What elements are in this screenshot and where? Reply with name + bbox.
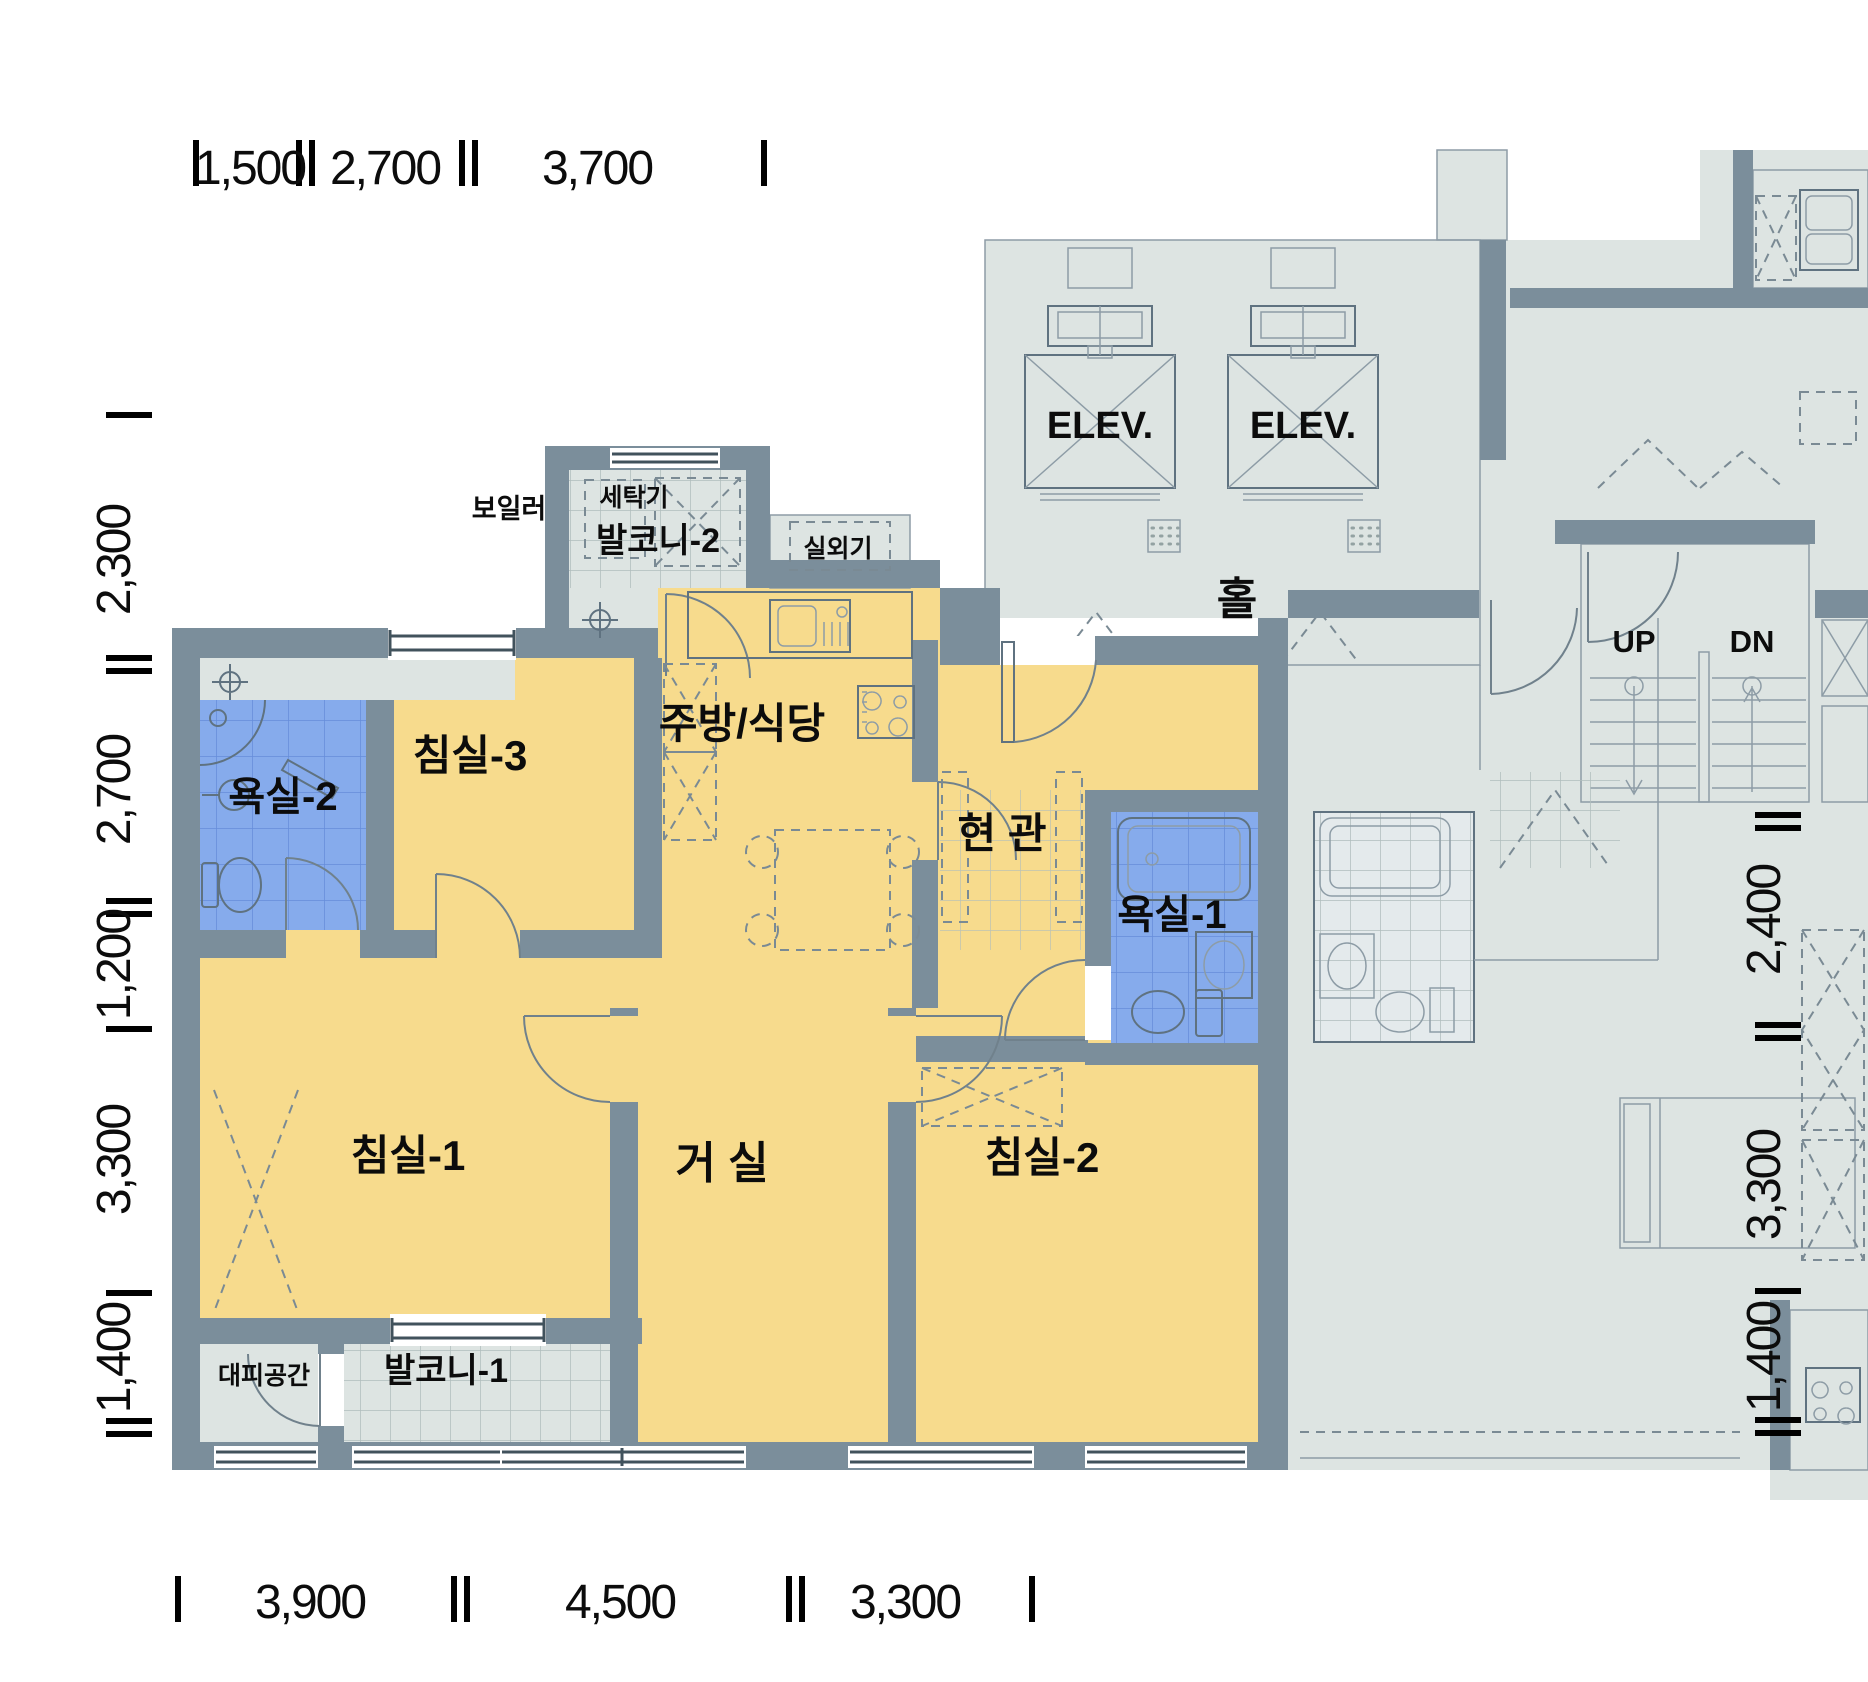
dim-tick [106, 1290, 152, 1296]
dim-tick [451, 1576, 457, 1622]
wall-bath2-bed3 [366, 700, 394, 958]
wall-right-exterior [1258, 618, 1288, 1470]
dim-tick [106, 412, 152, 418]
dim-tick [1755, 1430, 1801, 1436]
dim-left-2: 2,700 [88, 735, 141, 845]
label-elevator1: ELEV. [1047, 405, 1153, 447]
dim-tick [106, 1026, 152, 1032]
window-bed1-balcony [390, 1314, 546, 1346]
dim-top-1: 1,500 [195, 142, 305, 195]
dim-tick [106, 1431, 152, 1437]
floor-plan-page: 욕실-2 침실-3 주방/식당 현 관 욕실-1 침실-1 거 실 침실-2 발… [0, 0, 1868, 1682]
window-balcony1 [352, 1446, 508, 1468]
wall-kitchen-entrance-lower [912, 860, 938, 1008]
label-washer: 세탁기 [599, 484, 668, 512]
dim-bottom-3: 3,300 [850, 1576, 960, 1629]
wall-bath1-left [1085, 790, 1111, 966]
wall-nook-left [1733, 150, 1753, 290]
bath1-door-gap [1085, 966, 1111, 1040]
dim-top-3: 3,700 [542, 142, 652, 195]
dim-tick [309, 140, 315, 186]
wall-hallway-a [200, 930, 286, 958]
dim-tick [786, 1576, 792, 1622]
label-outdoor-unit: 실외기 [803, 535, 872, 563]
label-balcony2: 발코니-2 [596, 522, 720, 560]
dim-tick [106, 655, 152, 661]
label-bedroom3: 침실-3 [413, 732, 528, 779]
window-living-b [848, 1446, 1034, 1468]
dim-right-2: 3,300 [1738, 1130, 1791, 1240]
label-balcony1: 발코니-1 [384, 1352, 508, 1390]
window-evac [214, 1446, 318, 1468]
dim-tick [464, 1576, 470, 1622]
dim-tick [175, 1576, 181, 1622]
wall-neighbor-top-right [1815, 590, 1868, 618]
dim-tick [761, 140, 767, 186]
dim-tick [1029, 1576, 1035, 1622]
label-evacuation: 대피공간 [218, 1362, 310, 1390]
dim-tick [106, 1418, 152, 1424]
label-hall: 홀 [1217, 575, 1257, 624]
label-bedroom1: 침실-1 [351, 1132, 466, 1179]
wall-stair-top [1555, 520, 1815, 544]
dim-tick [459, 140, 465, 186]
wall-hallway-b [360, 930, 436, 958]
dim-tick [1755, 825, 1801, 831]
dim-left-5: 1,400 [88, 1303, 141, 1413]
label-kitchen-dining: 주방/식당 [659, 700, 825, 747]
dim-tick [472, 140, 478, 186]
wall-bed3-kitchen [634, 658, 662, 958]
wall-hallway-c [520, 930, 662, 958]
floor-plan-drawing: 욕실-2 침실-3 주방/식당 현 관 욕실-1 침실-1 거 실 침실-2 발… [0, 0, 1868, 1682]
wall-upper-band [1510, 288, 1868, 308]
wall-neighbor-top-left [1288, 590, 1479, 618]
wall-hall-right [1480, 240, 1506, 460]
label-entrance: 현 관 [958, 810, 1047, 857]
dim-tick [1755, 1035, 1801, 1041]
label-stairs-dn: DN [1730, 624, 1775, 659]
label-elevator2: ELEV. [1250, 405, 1356, 447]
evac-door-gap [318, 1354, 344, 1426]
bed2-door-gap [888, 1016, 916, 1102]
dim-left-1: 2,300 [88, 505, 141, 615]
dim-bottom-2: 4,500 [565, 1576, 675, 1629]
dim-tick [1755, 1288, 1801, 1294]
label-bathroom2: 욕실-2 [228, 775, 337, 819]
kitchen-entrance-door-gap [912, 782, 938, 860]
label-stairs-up: UP [1612, 624, 1655, 659]
wall-hall-right-of-door [1095, 636, 1258, 665]
dim-tick [106, 668, 152, 674]
wall-hall-left-of-door [985, 636, 1000, 665]
dim-top-2: 2,700 [330, 142, 440, 195]
dim-tick [1755, 812, 1801, 818]
wall-kitchen-entrance-upper [912, 640, 938, 782]
dim-tick [1755, 1022, 1801, 1028]
dim-tick [1755, 1417, 1801, 1423]
label-boiler: 보일러 [472, 494, 547, 524]
wall-bath1-top [1085, 790, 1260, 812]
wall-balcony2-left [545, 446, 569, 658]
ad-duct-strip [200, 658, 515, 700]
bed1-door-gap [610, 1016, 638, 1102]
dim-left-4: 3,300 [88, 1105, 141, 1215]
wall-kitchen-top [746, 560, 940, 588]
dim-tick [106, 898, 152, 904]
shaft-box [1437, 150, 1507, 240]
window-bed2 [1085, 1446, 1247, 1468]
dim-left-3: 1,200 [88, 910, 141, 1020]
dim-tick [799, 1576, 805, 1622]
dim-right-1: 2,400 [1738, 865, 1791, 975]
wall-bath1-bottom [1085, 1043, 1260, 1065]
window-bed3 [388, 626, 516, 660]
label-living-room: 거 실 [675, 1139, 768, 1188]
dim-right-3: 1,400 [1738, 1302, 1791, 1412]
dim-bottom-1: 3,900 [255, 1576, 365, 1629]
window-balcony2 [610, 448, 720, 468]
label-bathroom1: 욕실-1 [1117, 893, 1226, 937]
label-bedroom2: 침실-2 [985, 1134, 1100, 1181]
